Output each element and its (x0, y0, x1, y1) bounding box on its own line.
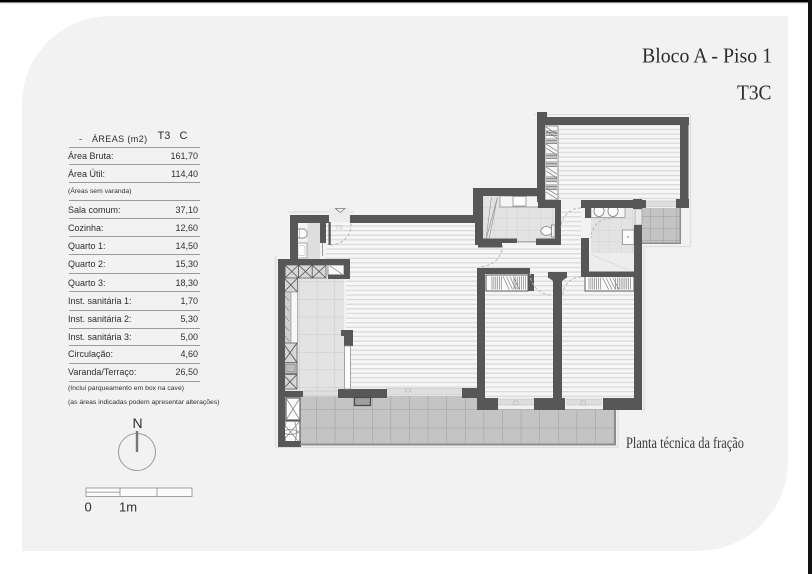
svg-text:T3C: T3C (737, 81, 772, 105)
svg-text:0: 0 (85, 500, 92, 515)
svg-text:Planta técnica da fração: Planta técnica da fração (626, 435, 744, 452)
svg-text:Bloco A - Piso 1: Bloco A - Piso 1 (642, 44, 772, 68)
svg-text:N: N (132, 415, 142, 431)
svg-text:T3: T3 (335, 225, 343, 232)
svg-text:1m: 1m (119, 500, 137, 515)
